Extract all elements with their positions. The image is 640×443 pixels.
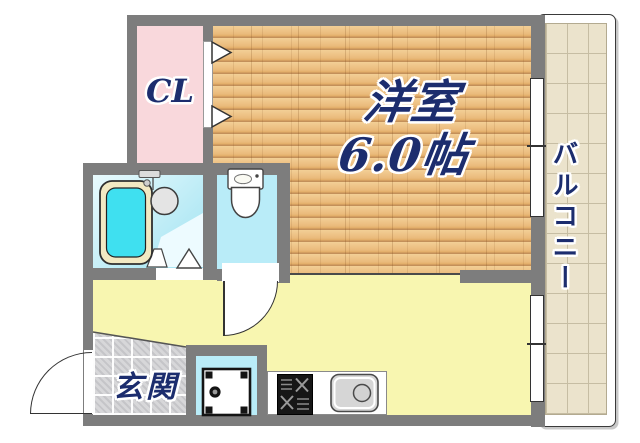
kitchen-sink-icon bbox=[331, 375, 378, 412]
floor-plan: 洋室 6.0帖 CL 玄関 バルコニー bbox=[0, 0, 640, 443]
bathtub-icon bbox=[100, 181, 152, 264]
entrance-label: 玄関 bbox=[100, 362, 192, 406]
closet-door-triangle bbox=[212, 106, 231, 127]
closet-door-triangle bbox=[212, 42, 231, 63]
closet-label: CL bbox=[137, 72, 203, 110]
washbasin-icon bbox=[151, 188, 178, 215]
room-size: 6.0帖 bbox=[335, 128, 473, 182]
room-label: 洋室 6.0帖 bbox=[258, 76, 558, 183]
washing-machine-pan-icon bbox=[203, 369, 250, 415]
balcony-label: バルコニー bbox=[548, 140, 582, 340]
fixtures-layer bbox=[0, 0, 640, 443]
gas-stove-icon bbox=[278, 375, 313, 415]
room-name: 洋室 bbox=[361, 75, 463, 129]
entrance-step-line bbox=[93, 332, 186, 347]
